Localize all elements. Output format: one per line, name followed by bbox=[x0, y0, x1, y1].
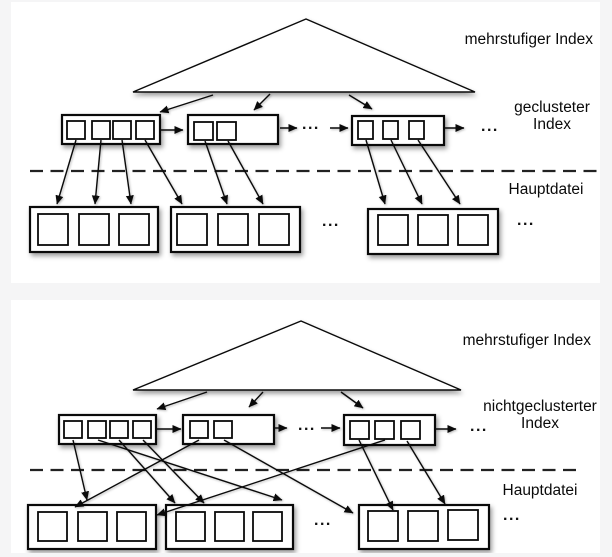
ellipsis-index-row-right: ... bbox=[481, 120, 499, 134]
label-multilevel-index: mehrstufiger Index bbox=[411, 31, 593, 48]
clustered-index-figure: mehrstufiger Index geclusteter Index Hau… bbox=[11, 2, 600, 283]
label-main-file: Hauptdatei bbox=[469, 482, 611, 499]
ellipsis-index-row-middle: ... bbox=[302, 118, 320, 132]
ellipsis-data-row-right: ... bbox=[503, 509, 521, 523]
slide-page: { "page": { "bg": "#f5f5f6", "panel_bg":… bbox=[0, 0, 612, 557]
nonclustered-index-figure: mehrstufiger Index nichtgeclusterter Ind… bbox=[11, 300, 600, 553]
label-main-file: Hauptdatei bbox=[475, 181, 612, 198]
ellipsis-index-row-middle: ... bbox=[298, 419, 316, 433]
ellipsis-index-row-right: ... bbox=[470, 420, 488, 434]
ellipsis-data-row-right: ... bbox=[517, 214, 535, 228]
ellipsis-data-row-middle: ... bbox=[314, 514, 332, 528]
label-clustered-index-line1: geclusteter bbox=[472, 99, 612, 116]
label-multilevel-index: mehrstufiger Index bbox=[409, 332, 591, 349]
ellipsis-data-row-middle: ... bbox=[322, 215, 340, 229]
label-nonclustered-index-line1: nichtgeclusterter bbox=[460, 398, 612, 415]
